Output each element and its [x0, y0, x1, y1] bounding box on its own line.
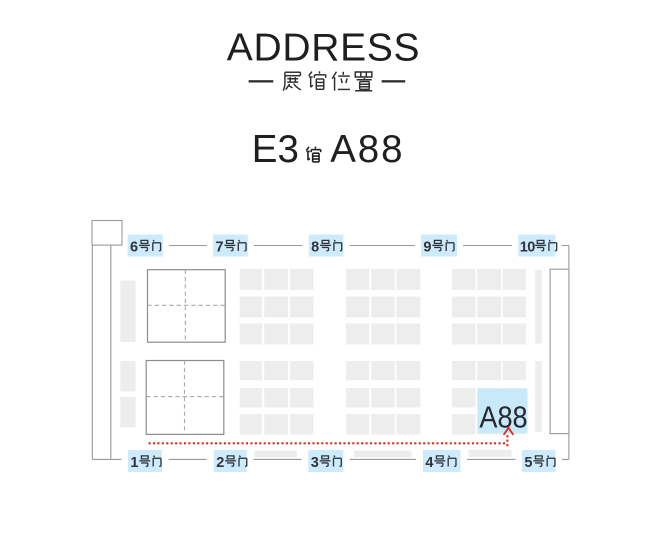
svg-text:E3: E3	[252, 128, 299, 171]
svg-text:5: 5	[524, 455, 532, 471]
svg-text:1: 1	[130, 455, 138, 471]
svg-text:ADDRESS: ADDRESS	[227, 27, 420, 70]
svg-text:2: 2	[216, 455, 224, 471]
svg-text:10: 10	[520, 240, 535, 256]
svg-text:8: 8	[311, 240, 319, 256]
svg-text:A88: A88	[479, 401, 527, 435]
svg-text:7: 7	[216, 240, 224, 256]
svg-text:3: 3	[311, 455, 319, 471]
svg-text:4: 4	[425, 455, 433, 471]
svg-text:9: 9	[423, 240, 431, 256]
svg-text:A88: A88	[330, 128, 404, 171]
svg-text:6: 6	[130, 240, 138, 256]
